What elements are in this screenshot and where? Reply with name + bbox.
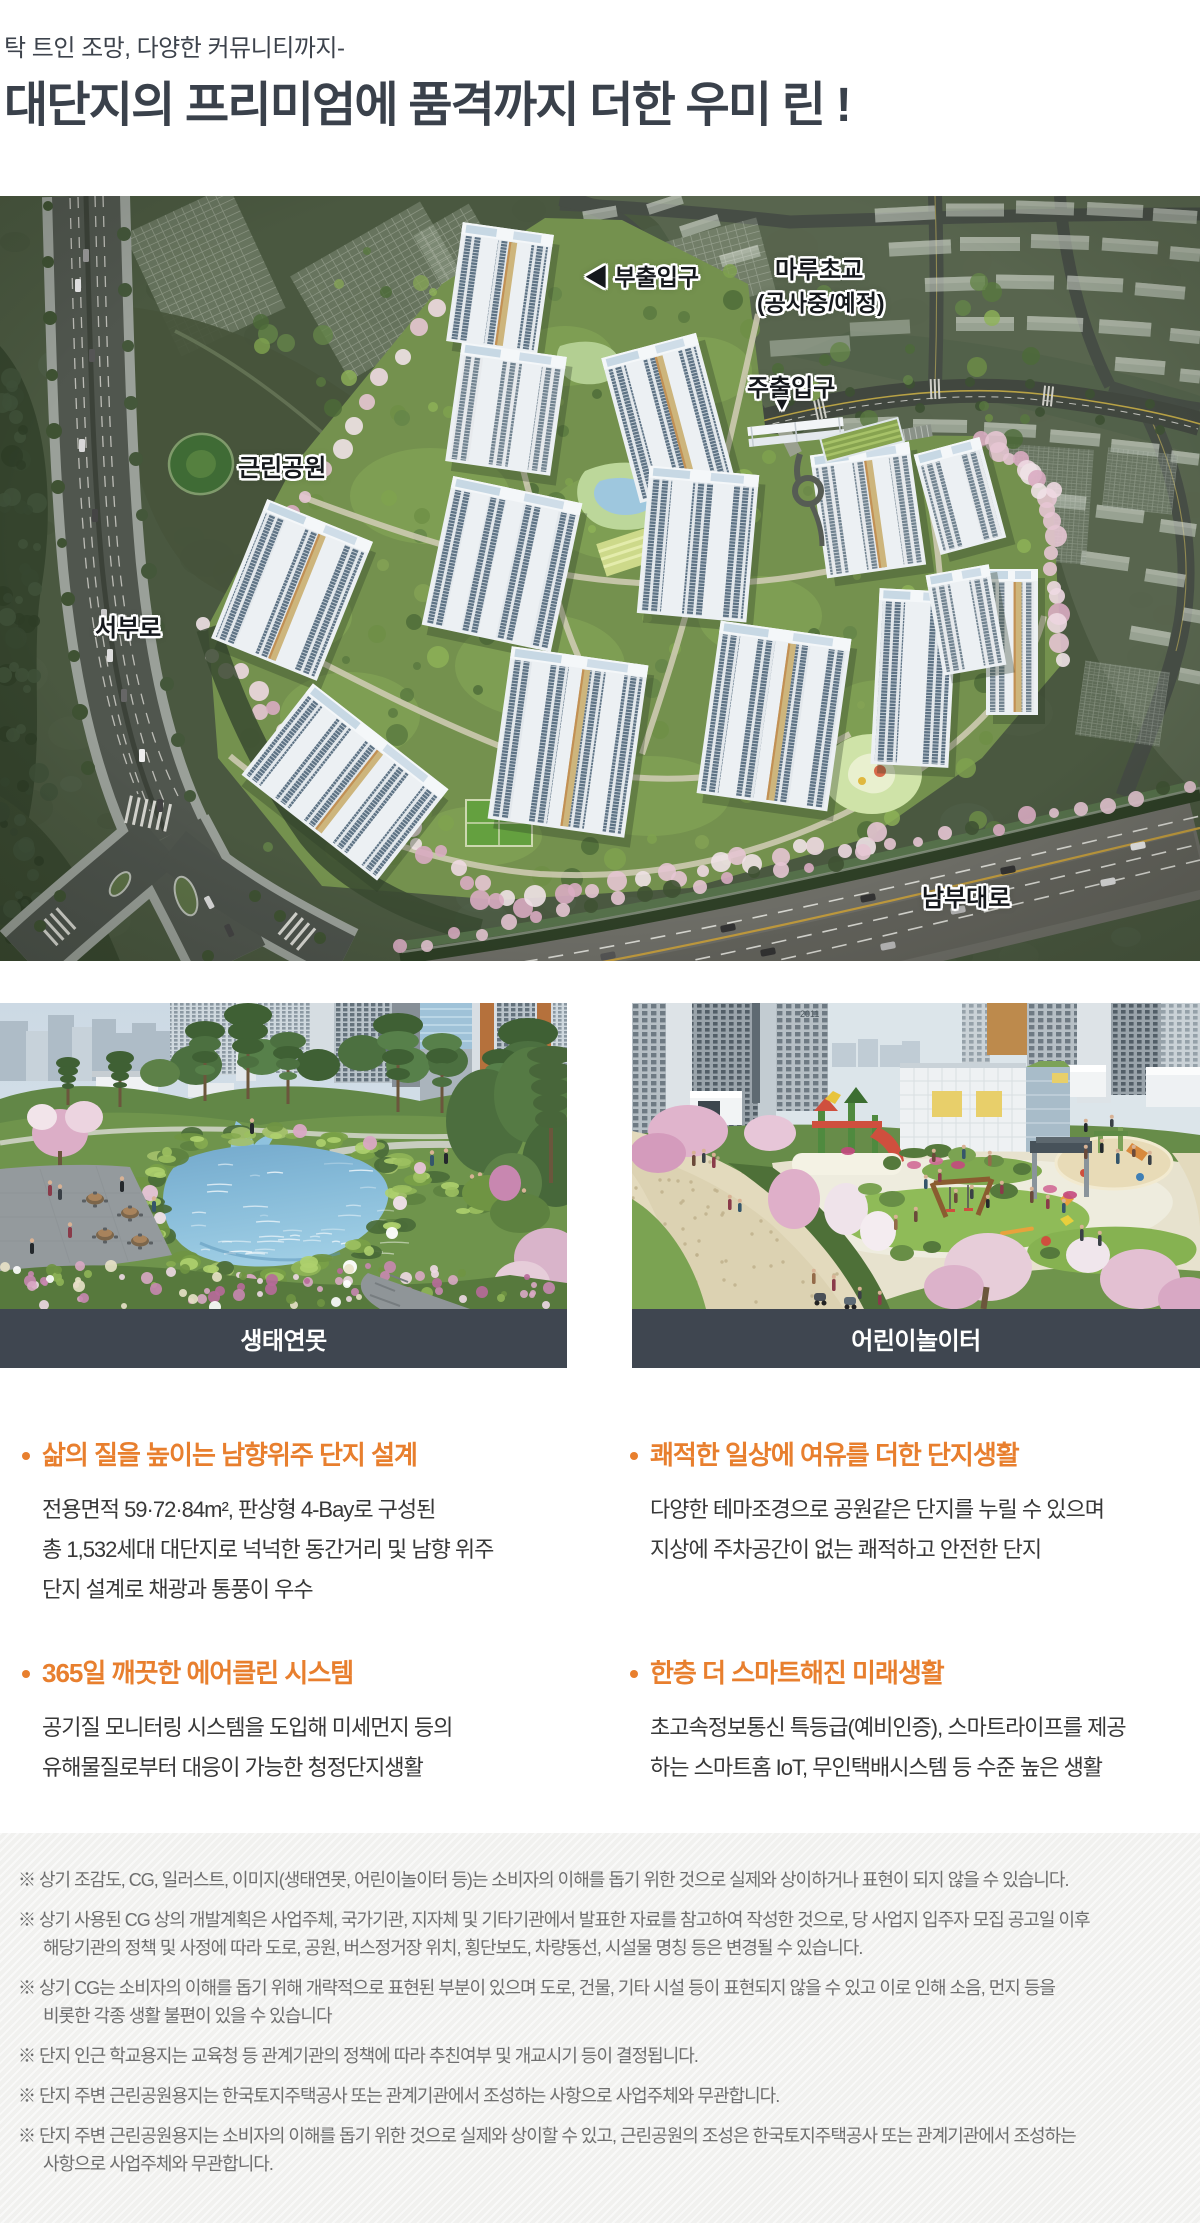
svg-text:2011: 2011 xyxy=(800,1009,819,1019)
